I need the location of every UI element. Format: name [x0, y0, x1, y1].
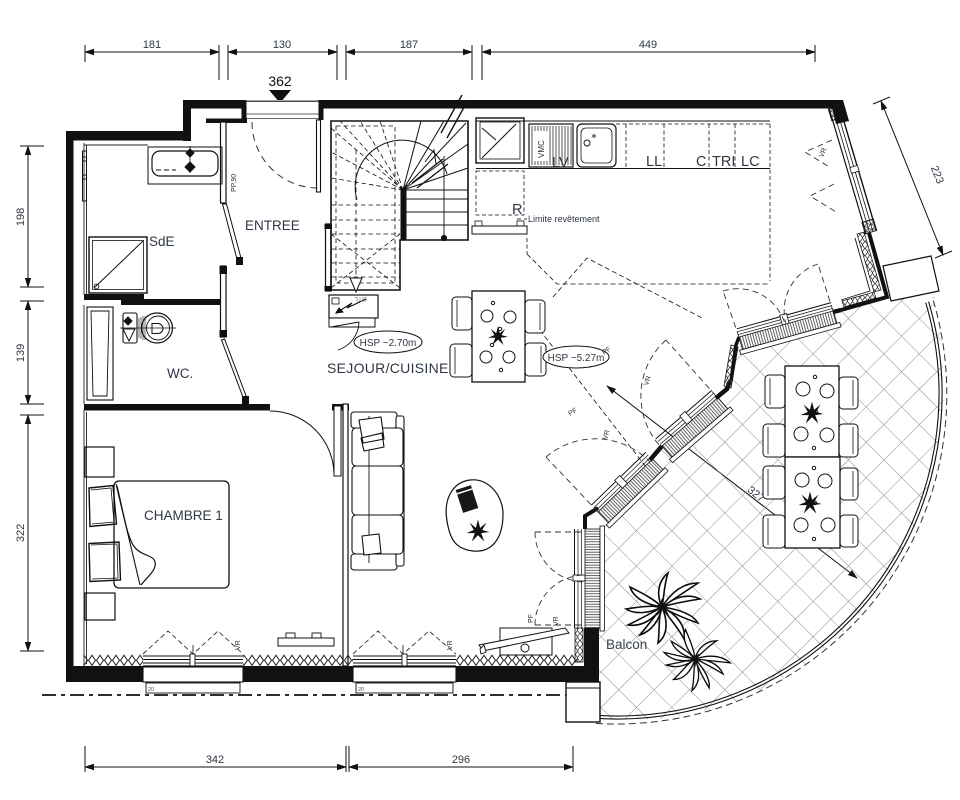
svg-text:322: 322 [15, 524, 27, 542]
svg-text:SEJOUR/CUISINE: SEJOUR/CUISINE [327, 360, 449, 376]
svg-text:VMC: VMC [537, 140, 546, 158]
svg-text:Balcon: Balcon [606, 637, 647, 652]
svg-text:Limite revêtement: Limite revêtement [528, 214, 600, 224]
svg-text:C: C [696, 154, 706, 170]
svg-text:LC: LC [741, 154, 760, 170]
svg-text:187: 187 [400, 39, 418, 51]
svg-text:181: 181 [143, 39, 161, 51]
svg-text:342: 342 [206, 754, 224, 766]
svg-text:VR: VR [447, 640, 454, 650]
svg-text:VR: VR [235, 640, 242, 650]
svg-text:296: 296 [452, 754, 470, 766]
svg-text:LV: LV [552, 155, 569, 171]
svg-text:HSP ~2.70m: HSP ~2.70m [360, 338, 417, 349]
svg-text:ENTREE: ENTREE [245, 218, 300, 233]
svg-text:GTL: GTL [354, 295, 367, 302]
svg-text:WC.: WC. [167, 366, 193, 381]
svg-text:CHAMBRE 1: CHAMBRE 1 [144, 508, 223, 523]
svg-text:PP.90: PP.90 [231, 174, 238, 192]
svg-text:VR: VR [553, 616, 560, 626]
svg-text:LL: LL [646, 154, 662, 170]
svg-text:HSP ~5.27m: HSP ~5.27m [548, 353, 605, 364]
svg-text:20: 20 [358, 687, 364, 693]
svg-text:SdE: SdE [149, 234, 175, 249]
svg-text:198: 198 [15, 208, 27, 226]
svg-text:PF: PF [528, 614, 535, 623]
svg-text:362: 362 [268, 73, 292, 89]
svg-text:449: 449 [639, 39, 657, 51]
svg-text:20: 20 [148, 687, 154, 693]
svg-text:130: 130 [273, 39, 291, 51]
svg-text:139: 139 [15, 344, 27, 362]
svg-text:TRI: TRI [712, 154, 735, 170]
svg-text:R: R [512, 202, 522, 218]
